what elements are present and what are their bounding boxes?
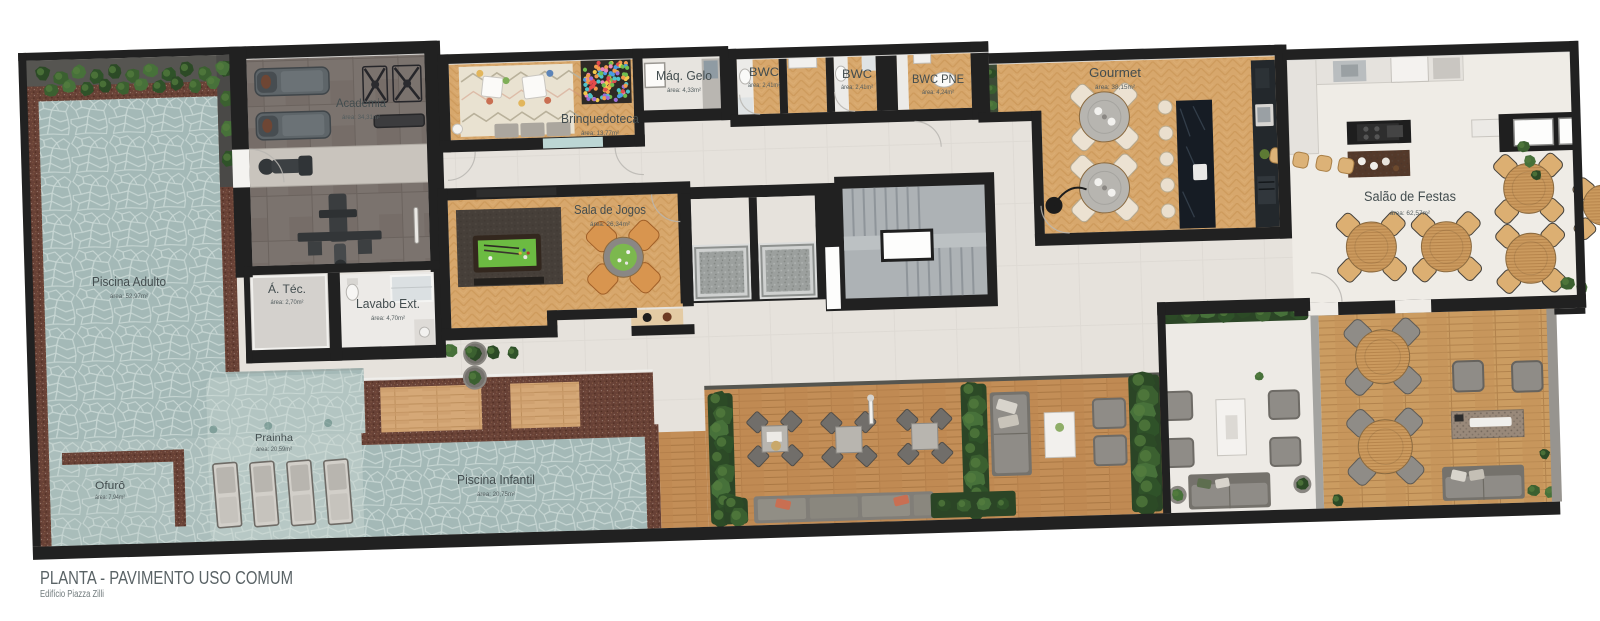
svg-text:BWC PNE: BWC PNE — [912, 74, 964, 86]
svg-text:Á. Téc.: Á. Téc. — [268, 281, 306, 296]
svg-text:área: 4,33m²: área: 4,33m² — [667, 87, 702, 94]
svg-text:área: 2,70m²: área: 2,70m² — [271, 299, 305, 306]
svg-text:área: 7,94m²: área: 7,94m² — [95, 494, 126, 501]
svg-text:área: 2,41m²: área: 2,41m² — [748, 82, 781, 89]
svg-text:Máq. Gelo: Máq. Gelo — [656, 69, 712, 83]
svg-text:área: 13,77m²: área: 13,77m² — [581, 130, 620, 137]
svg-text:área: 2,41m²: área: 2,41m² — [841, 84, 874, 91]
svg-text:PLANTA - PAVIMENTO USO COMUM: PLANTA - PAVIMENTO USO COMUM — [40, 568, 293, 588]
svg-text:área: 62,57m²: área: 62,57m² — [1390, 210, 1431, 217]
svg-text:área: 52,97m²: área: 52,97m² — [110, 293, 149, 300]
svg-text:área: 4,24m²: área: 4,24m² — [922, 89, 955, 96]
svg-text:Piscina Infantil: Piscina Infantil — [457, 473, 535, 487]
svg-text:área: 26,34m²: área: 26,34m² — [590, 221, 631, 228]
svg-text:Brinquedoteca: Brinquedoteca — [561, 112, 639, 126]
svg-text:BWC: BWC — [749, 67, 779, 79]
svg-text:área: 4,70m²: área: 4,70m² — [371, 315, 406, 322]
svg-text:Edifício Piazza Zilli: Edifício Piazza Zilli — [40, 589, 104, 600]
svg-text:Academia: Academia — [336, 96, 386, 110]
svg-text:Sala de Jogos: Sala de Jogos — [574, 202, 646, 217]
svg-text:Piscina Adulto: Piscina Adulto — [92, 275, 166, 289]
svg-text:BWC: BWC — [842, 69, 872, 81]
svg-text:área: 34,31m²: área: 34,31m² — [342, 114, 381, 121]
svg-text:Prainha: Prainha — [255, 432, 293, 444]
svg-text:Gourmet: Gourmet — [1089, 65, 1141, 80]
svg-text:área: 38,15m²: área: 38,15m² — [1095, 84, 1136, 91]
svg-text:Lavabo Ext.: Lavabo Ext. — [356, 297, 420, 311]
svg-text:área: 20,75m²: área: 20,75m² — [477, 491, 516, 498]
svg-text:área: 20,59m²: área: 20,59m² — [256, 446, 293, 453]
svg-text:Ofurô: Ofurô — [95, 480, 125, 492]
svg-text:Salão de Festas: Salão de Festas — [1364, 189, 1456, 204]
